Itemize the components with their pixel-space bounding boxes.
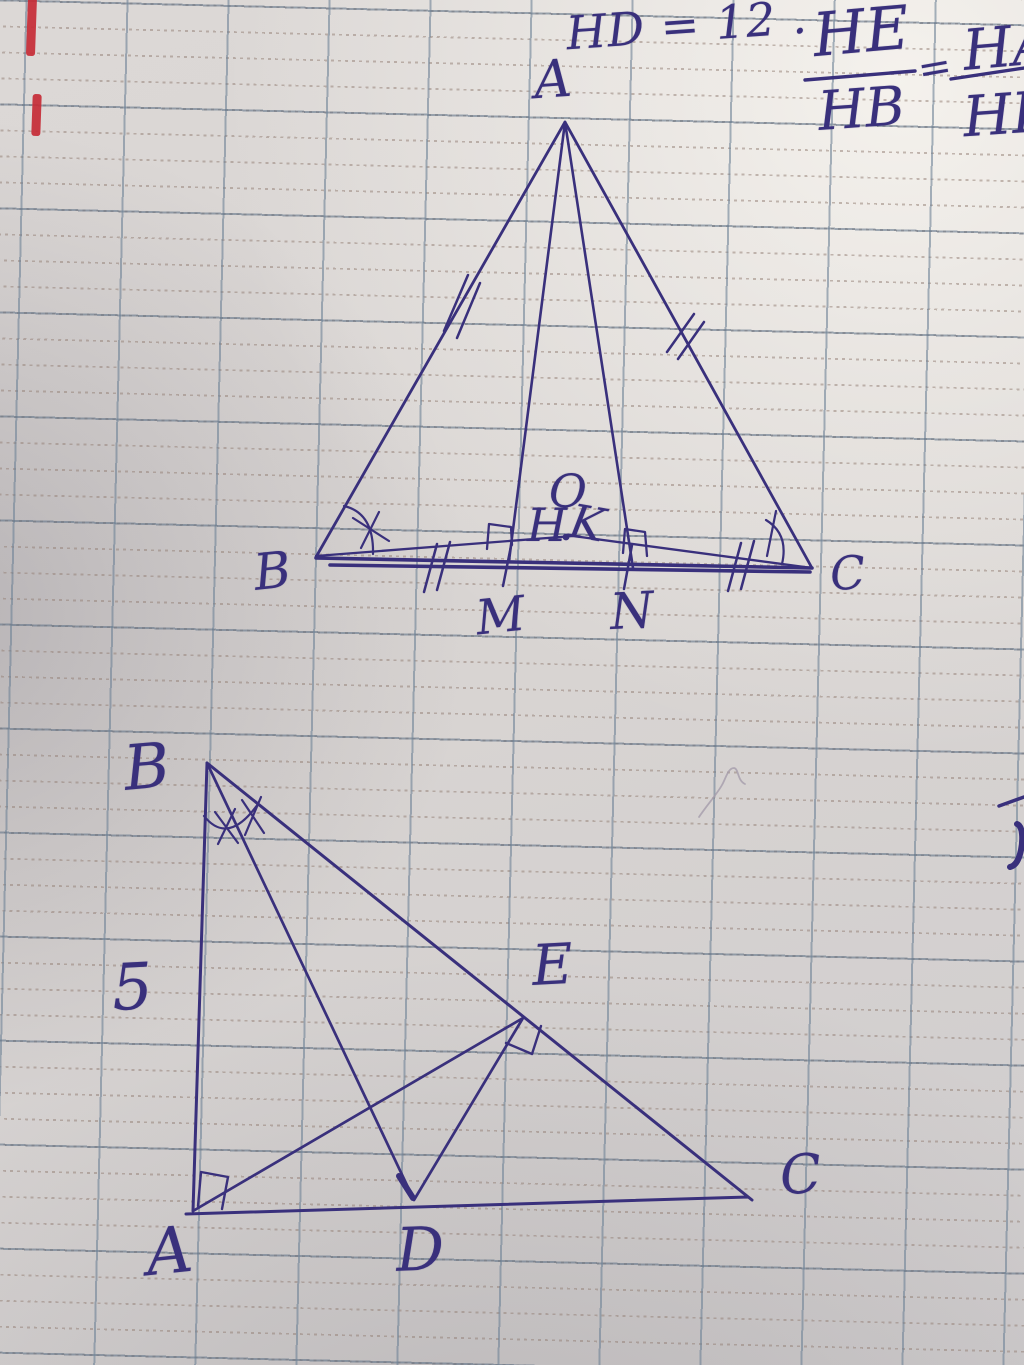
- fig2-label-e: E: [531, 937, 575, 995]
- segments-bd-ae-de: [193, 763, 523, 1211]
- pencil-squiggle: [699, 768, 745, 817]
- fig1-label-a: A: [532, 53, 573, 107]
- stroke-thickening-at-d: [399, 1176, 413, 1198]
- fig1-label-n: N: [609, 585, 655, 637]
- equals-sign: =: [915, 45, 955, 90]
- frac1-denominator: HB: [816, 79, 906, 139]
- frac2-denominator: HI: [961, 86, 1024, 147]
- fig1-label-c: C: [828, 549, 866, 597]
- fig1-label-m: M: [474, 590, 528, 643]
- fig1-label-h: H: [527, 502, 567, 548]
- angle-x-mark-b: [353, 512, 389, 548]
- fig1-label-b: B: [251, 544, 293, 598]
- fig2-label-a: A: [143, 1218, 196, 1286]
- edge-cut-mark: [1010, 824, 1022, 867]
- fig2-label-d: D: [395, 1219, 445, 1281]
- hatch-marks-sides: [444, 275, 704, 359]
- frac1-numerator: HE: [811, 0, 912, 66]
- handwritten-diagram-strokes: [0, 0, 1024, 1365]
- fig2-length-ab: 5: [110, 955, 154, 1021]
- figure-bottom-triangle-abc: [186, 763, 752, 1214]
- sides-ab-ac-bc: [186, 763, 752, 1214]
- right-angle-marks-a-e: [198, 1026, 541, 1209]
- frac2-numerator: HA: [961, 16, 1024, 80]
- edge-cut-stroke: [999, 797, 1024, 806]
- fig2-label-c: C: [778, 1147, 823, 1204]
- notebook-page-photo: HD = 12 . HE HB = HA HI A B C M N O H K …: [0, 0, 1024, 1365]
- fig2-label-b: B: [121, 734, 172, 800]
